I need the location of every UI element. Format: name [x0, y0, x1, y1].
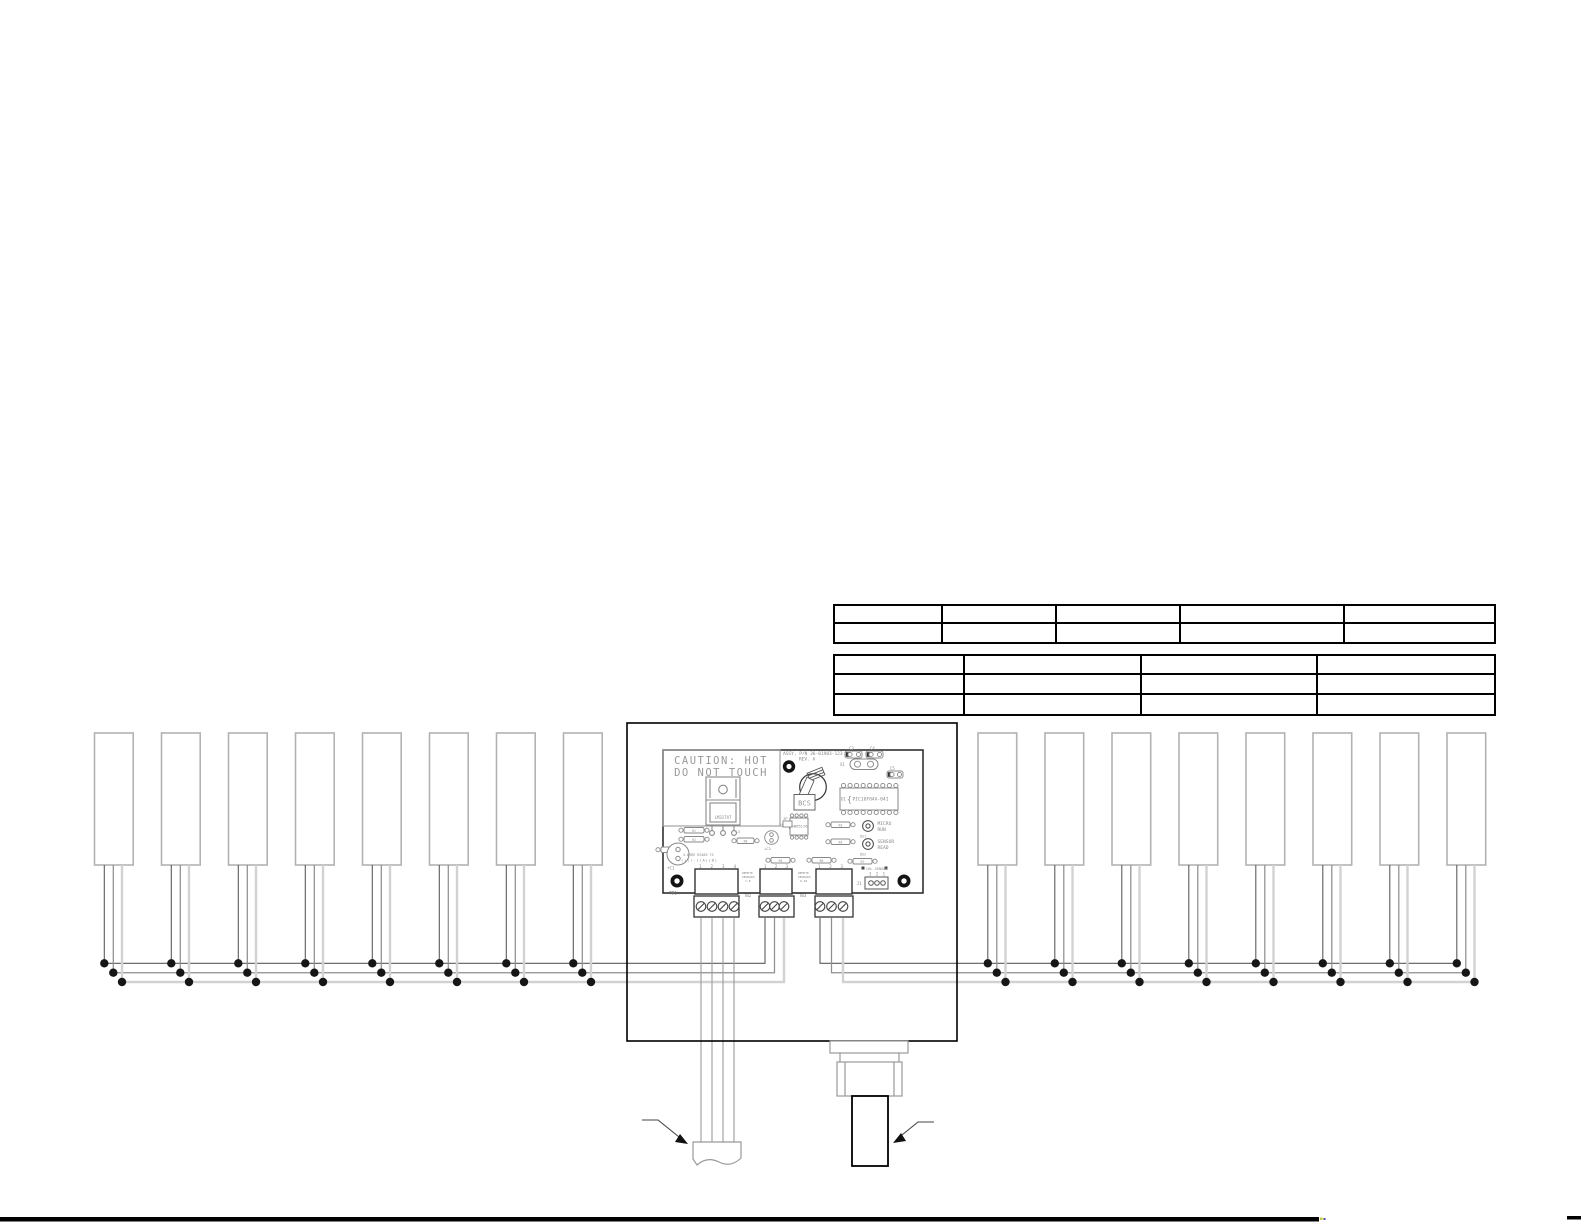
jp-label: JP	[783, 816, 788, 821]
junction-dot	[1462, 969, 1470, 977]
terminal-screw	[760, 902, 770, 912]
junction-dot	[1127, 969, 1135, 977]
led1-label-2: RUN	[878, 827, 887, 833]
resistor-label: R6	[820, 859, 824, 863]
table-cell	[835, 675, 965, 694]
table-cell	[965, 695, 1142, 714]
u2-part: SN65176	[792, 824, 809, 829]
junction-dot	[1328, 969, 1336, 977]
terminal-screw	[770, 902, 780, 912]
sensor-2	[162, 733, 201, 865]
junction-dot	[185, 978, 193, 986]
cal-sensor-label: CAL SENSOR	[866, 867, 888, 871]
junction-dot	[1202, 978, 1210, 986]
u2-pin	[804, 814, 807, 817]
junction-dot	[1261, 969, 1269, 977]
junction-dot	[569, 959, 577, 967]
junction-dot	[502, 959, 510, 967]
table-cell	[965, 656, 1142, 675]
j1-pin-numbers: 3 2 1	[869, 872, 886, 877]
junction-dot	[319, 978, 327, 986]
tb3-body	[816, 869, 852, 894]
u1-ref: U1	[841, 797, 846, 802]
capacitor-c3	[845, 751, 862, 758]
sensor-13	[1246, 733, 1285, 865]
junction-dot	[1118, 959, 1126, 967]
resistor-label: R1	[692, 829, 696, 833]
table-cell	[1345, 624, 1494, 642]
junction-dot	[310, 969, 318, 977]
capacitor-c5	[887, 771, 903, 778]
bus-left-1	[104, 918, 765, 963]
sensor-3	[229, 733, 268, 865]
junction-dot	[1395, 969, 1403, 977]
junction-dot	[1470, 978, 1478, 986]
ds2-ref: DS2	[860, 853, 866, 857]
u1-brace: {	[847, 795, 852, 804]
junction-dot	[386, 978, 394, 986]
junction-dot	[453, 978, 461, 986]
l3-label: L3	[736, 830, 740, 834]
u1-pin	[848, 783, 852, 787]
terminal-screw	[729, 902, 739, 912]
junction-dot	[368, 959, 376, 967]
u1-pin	[868, 783, 872, 787]
tb3-note-3: 9-16	[800, 879, 807, 883]
u1-pin	[868, 810, 872, 814]
sensor-8	[564, 733, 603, 865]
sensor-bus-wires	[104, 918, 1475, 982]
u1-pin	[861, 783, 865, 787]
u1-pin	[881, 783, 885, 787]
u1-part: PIC16F84A-04I	[853, 797, 889, 803]
x1-pad	[868, 761, 874, 767]
switch-label: BCS	[798, 800, 811, 808]
junction-dot	[1453, 959, 1461, 967]
sensor-6	[430, 733, 469, 865]
terminal-screw	[815, 902, 825, 912]
junction-dot	[993, 969, 1001, 977]
tb1-ref: TB1	[669, 891, 677, 897]
j1-ref: J1	[857, 881, 863, 886]
u1-pin	[874, 783, 878, 787]
sensor-16	[1447, 733, 1486, 865]
u1-pin	[881, 810, 885, 814]
table-cell	[943, 606, 1057, 624]
conduit-connector	[830, 1041, 908, 1096]
resistor-label: R8	[744, 839, 748, 843]
ds1-ref: DS1	[860, 835, 866, 839]
table-cell	[835, 624, 943, 642]
led1-label-1: MICRO	[878, 821, 892, 827]
jumper-jp	[783, 821, 792, 827]
resistor-label: R3	[839, 823, 843, 827]
junction-dot	[1252, 959, 1260, 967]
callout-arrow-right	[893, 1122, 934, 1143]
spec-table-upper	[833, 604, 1496, 644]
u1-pin	[894, 810, 898, 814]
junction-dot	[1060, 969, 1068, 977]
sensor-7	[497, 733, 536, 865]
junction-dot	[1051, 959, 1059, 967]
junction-dot	[118, 978, 126, 986]
u2-pin	[790, 836, 793, 839]
u1-pin	[894, 783, 898, 787]
regulator-label: LM317AT	[715, 815, 732, 820]
junction-dot	[1386, 959, 1394, 967]
junction-dot	[1068, 978, 1076, 986]
sheet-border	[0, 1216, 1581, 1222]
table-cell	[1057, 606, 1182, 624]
sensor-4	[296, 733, 335, 865]
junction-dot	[1185, 959, 1193, 967]
junction-dot	[578, 969, 586, 977]
u1-pin	[855, 783, 859, 787]
c1-label: +C1	[667, 866, 675, 871]
sensor-10	[1045, 733, 1084, 865]
table-cell	[943, 624, 1057, 642]
junction-dot	[1319, 959, 1327, 967]
bus-left-2	[113, 918, 775, 973]
schematic-page: CAUTION: HOT DO NOT TOUCH LM317AT ASSY, …	[0, 0, 1585, 1225]
led2-label-1: SENSOR	[878, 839, 895, 845]
sensor-5	[363, 733, 402, 865]
callout-arrow-left	[642, 1120, 688, 1144]
terminal-screw	[827, 902, 837, 912]
capacitor-c2	[765, 831, 779, 845]
cal-mark	[862, 867, 865, 870]
resistor-label: R7	[861, 860, 865, 864]
resistor-label: R5	[779, 859, 783, 863]
capacitor-c4	[866, 751, 883, 758]
u1-pin	[861, 810, 865, 814]
table-cell	[1142, 656, 1319, 675]
table-cell	[1318, 695, 1494, 714]
junction-dot	[100, 959, 108, 967]
rs485-cable-wires	[701, 918, 734, 1143]
table-cell	[1181, 606, 1345, 624]
junction-dot	[444, 969, 452, 977]
u1-pin	[855, 810, 859, 814]
rev-label: REV. A	[799, 757, 816, 763]
u1-pin	[841, 783, 845, 787]
spec-table-lower	[833, 654, 1496, 716]
junction-dot	[520, 978, 528, 986]
sensor-12	[1179, 733, 1218, 865]
u2-pin	[790, 814, 793, 817]
u2-pin	[804, 836, 807, 839]
terminal-screw	[707, 902, 717, 912]
terminal-screw	[696, 902, 706, 912]
junction-dot	[1403, 978, 1411, 986]
terminal-screw	[838, 902, 848, 912]
junction-dot	[587, 978, 595, 986]
table-cell	[1318, 675, 1494, 694]
pcb-board: CAUTION: HOT DO NOT TOUCH LM317AT ASSY, …	[656, 746, 923, 917]
table-cell	[835, 695, 965, 714]
junction-dot	[167, 959, 175, 967]
junction-dot	[435, 959, 443, 967]
junction-dot	[1269, 978, 1277, 986]
junction-dot	[1194, 969, 1202, 977]
caution-text-1: CAUTION: HOT	[674, 755, 768, 767]
cable-end-symbol	[693, 1142, 741, 1165]
tb2-body	[760, 869, 792, 894]
c4-label: C4	[870, 746, 875, 751]
table-cell	[835, 656, 965, 675]
u1-pin	[874, 810, 878, 814]
junction-dot	[377, 969, 385, 977]
tb1-note-2: (+)(-)(A)(B)	[681, 858, 717, 863]
probe-body	[852, 1096, 888, 1166]
sensor-9	[978, 733, 1017, 865]
u2-pin	[800, 814, 803, 817]
u2-pin	[800, 836, 803, 839]
junction-dot	[1001, 978, 1009, 986]
x1-label: X1	[840, 762, 845, 767]
c2-label: +C2	[764, 846, 771, 851]
x1-pad	[855, 761, 861, 767]
junction-dot	[511, 969, 519, 977]
c3-label: C3	[849, 746, 854, 751]
junction-dot	[176, 969, 184, 977]
u2-pin	[795, 814, 798, 817]
junction-dot	[243, 969, 251, 977]
table-cell	[835, 606, 943, 624]
junction-dot	[252, 978, 260, 986]
junction-dot	[1336, 978, 1344, 986]
tb1-note-1: 4-WIRE RS485 TX	[683, 853, 715, 857]
sensor-14	[1313, 733, 1352, 865]
u2-pin	[795, 836, 798, 839]
connector-j1	[865, 877, 888, 889]
tb2-note-3: 1-8	[745, 879, 751, 883]
table-cell	[1142, 675, 1319, 694]
resistor-label: R4	[839, 840, 843, 844]
assy-number: ASSY, P/N 36-01903-123	[783, 751, 843, 757]
u1-pin	[887, 810, 891, 814]
table-cell	[1345, 606, 1494, 624]
resistor-label: R2	[692, 838, 696, 842]
terminal-screw	[718, 902, 728, 912]
c5-label: C5	[890, 766, 895, 771]
sensor-15	[1380, 733, 1419, 865]
junction-dot	[234, 959, 242, 967]
junction-dot	[1135, 978, 1143, 986]
tb3-ref: TB3	[799, 893, 807, 898]
terminal-screw	[779, 902, 789, 912]
table-cell	[1181, 624, 1345, 642]
u1-pin	[887, 783, 891, 787]
tb2-ref: TB2	[744, 893, 752, 898]
junction-dot	[301, 959, 309, 967]
junction-dot	[109, 969, 117, 977]
sensor-1	[95, 733, 134, 865]
table-cell	[965, 675, 1142, 694]
table-cell	[1057, 624, 1182, 642]
bus-right-2	[832, 918, 1467, 973]
led2-label-2: READ	[878, 845, 889, 851]
table-cell	[1142, 695, 1319, 714]
sensor-11	[1112, 733, 1151, 865]
junction-dot	[984, 959, 992, 967]
u1-pin	[848, 810, 852, 814]
u1-pin	[841, 810, 845, 814]
table-cell	[1318, 656, 1494, 675]
tb1-body	[695, 869, 738, 894]
